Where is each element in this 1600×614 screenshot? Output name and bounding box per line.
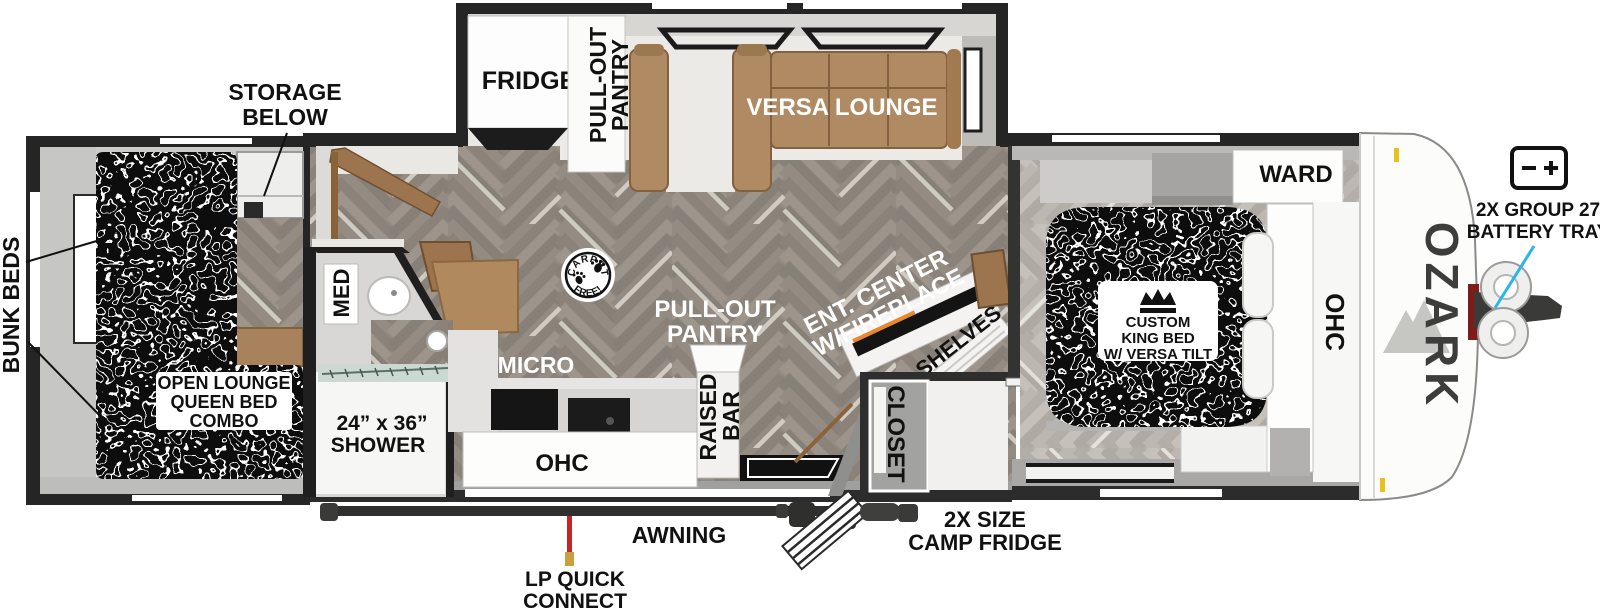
svg-text:24” x 36”: 24” x 36” xyxy=(336,412,427,435)
svg-text:MED: MED xyxy=(329,269,354,318)
svg-text:OZARK: OZARK xyxy=(1416,222,1468,411)
svg-text:COMBO: COMBO xyxy=(190,411,259,431)
svg-text:QUEEN BED: QUEEN BED xyxy=(170,392,277,412)
svg-text:OHC: OHC xyxy=(1320,293,1350,351)
svg-text:KING BED: KING BED xyxy=(1121,330,1195,347)
svg-text:MICRO: MICRO xyxy=(498,352,575,378)
svg-text:OHC: OHC xyxy=(535,450,588,477)
svg-text:CAMP FRIDGE: CAMP FRIDGE xyxy=(908,530,1062,555)
svg-text:BELOW: BELOW xyxy=(242,104,328,130)
svg-text:CONNECT: CONNECT xyxy=(523,590,627,609)
svg-text:BATTERY TRAY: BATTERY TRAY xyxy=(1467,222,1600,243)
svg-text:OPEN LOUNGE: OPEN LOUNGE xyxy=(157,373,290,393)
svg-text:SHOWER: SHOWER xyxy=(331,434,426,457)
svg-text:STORAGE: STORAGE xyxy=(228,79,341,105)
svg-text:CLOSET: CLOSET xyxy=(882,385,909,483)
svg-text:W/ VERSA TILT: W/ VERSA TILT xyxy=(1104,346,1212,363)
svg-text:BUNK BEDS: BUNK BEDS xyxy=(0,237,24,374)
svg-text:PANTRY: PANTRY xyxy=(667,321,763,348)
svg-text:2X SIZE: 2X SIZE xyxy=(944,507,1026,532)
svg-text:WARD: WARD xyxy=(1259,161,1332,188)
svg-text:LP QUICK: LP QUICK xyxy=(525,568,625,591)
svg-text:VERSA LOUNGE: VERSA LOUNGE xyxy=(746,94,937,121)
svg-text:CUSTOM: CUSTOM xyxy=(1126,314,1191,331)
svg-text:PULL-OUT: PULL-OUT xyxy=(654,296,776,323)
svg-text:AWNING: AWNING xyxy=(632,522,727,548)
svg-text:2X GROUP 27: 2X GROUP 27 xyxy=(1476,200,1600,221)
svg-text:BAR: BAR xyxy=(718,391,744,441)
svg-text:FRIDGE: FRIDGE xyxy=(482,67,576,95)
